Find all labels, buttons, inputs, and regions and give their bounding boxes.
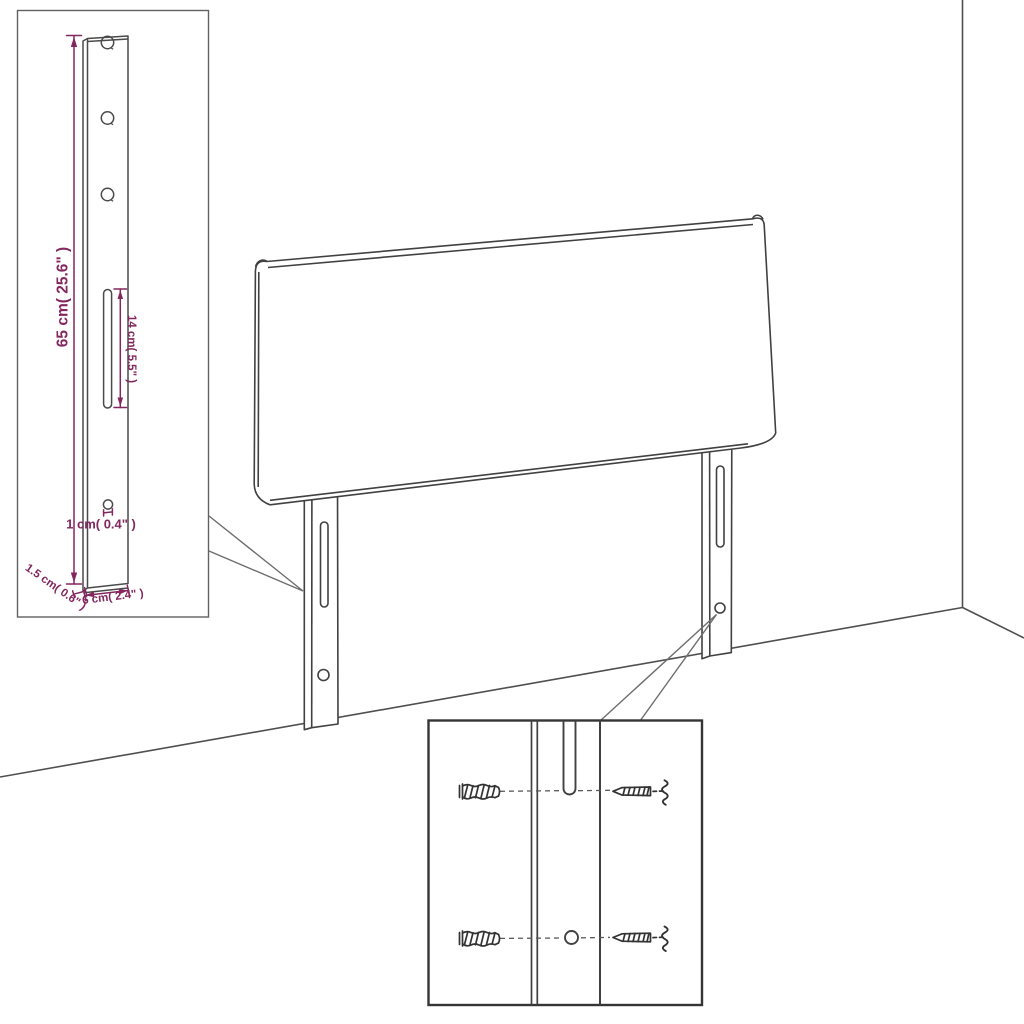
inset-callout-lines (209, 516, 303, 591)
dimension-label-hole-diameter: 1 cm( 0.4" ) (66, 518, 136, 531)
left-mounting-leg (304, 483, 338, 730)
panel-left-inner-edge (258, 272, 259, 487)
dimension-label-bracket-height: 65 cm( 25.6" ) (55, 247, 71, 347)
bracket-front-view (83, 36, 128, 593)
assembly-diagram: 65 cm( 25.6" ) 14 cm( 5.5" ) 1 cm( 0.4" … (0, 0, 1024, 1024)
hardware-detail-box (429, 721, 703, 1006)
right-mounting-leg (702, 438, 732, 659)
diagram-line-art (0, 0, 1024, 1024)
dimension-label-slot-length: 14 cm( 5.5" ) (124, 315, 136, 383)
headboard-panel (254, 215, 776, 505)
floor-line-right (963, 608, 1024, 639)
